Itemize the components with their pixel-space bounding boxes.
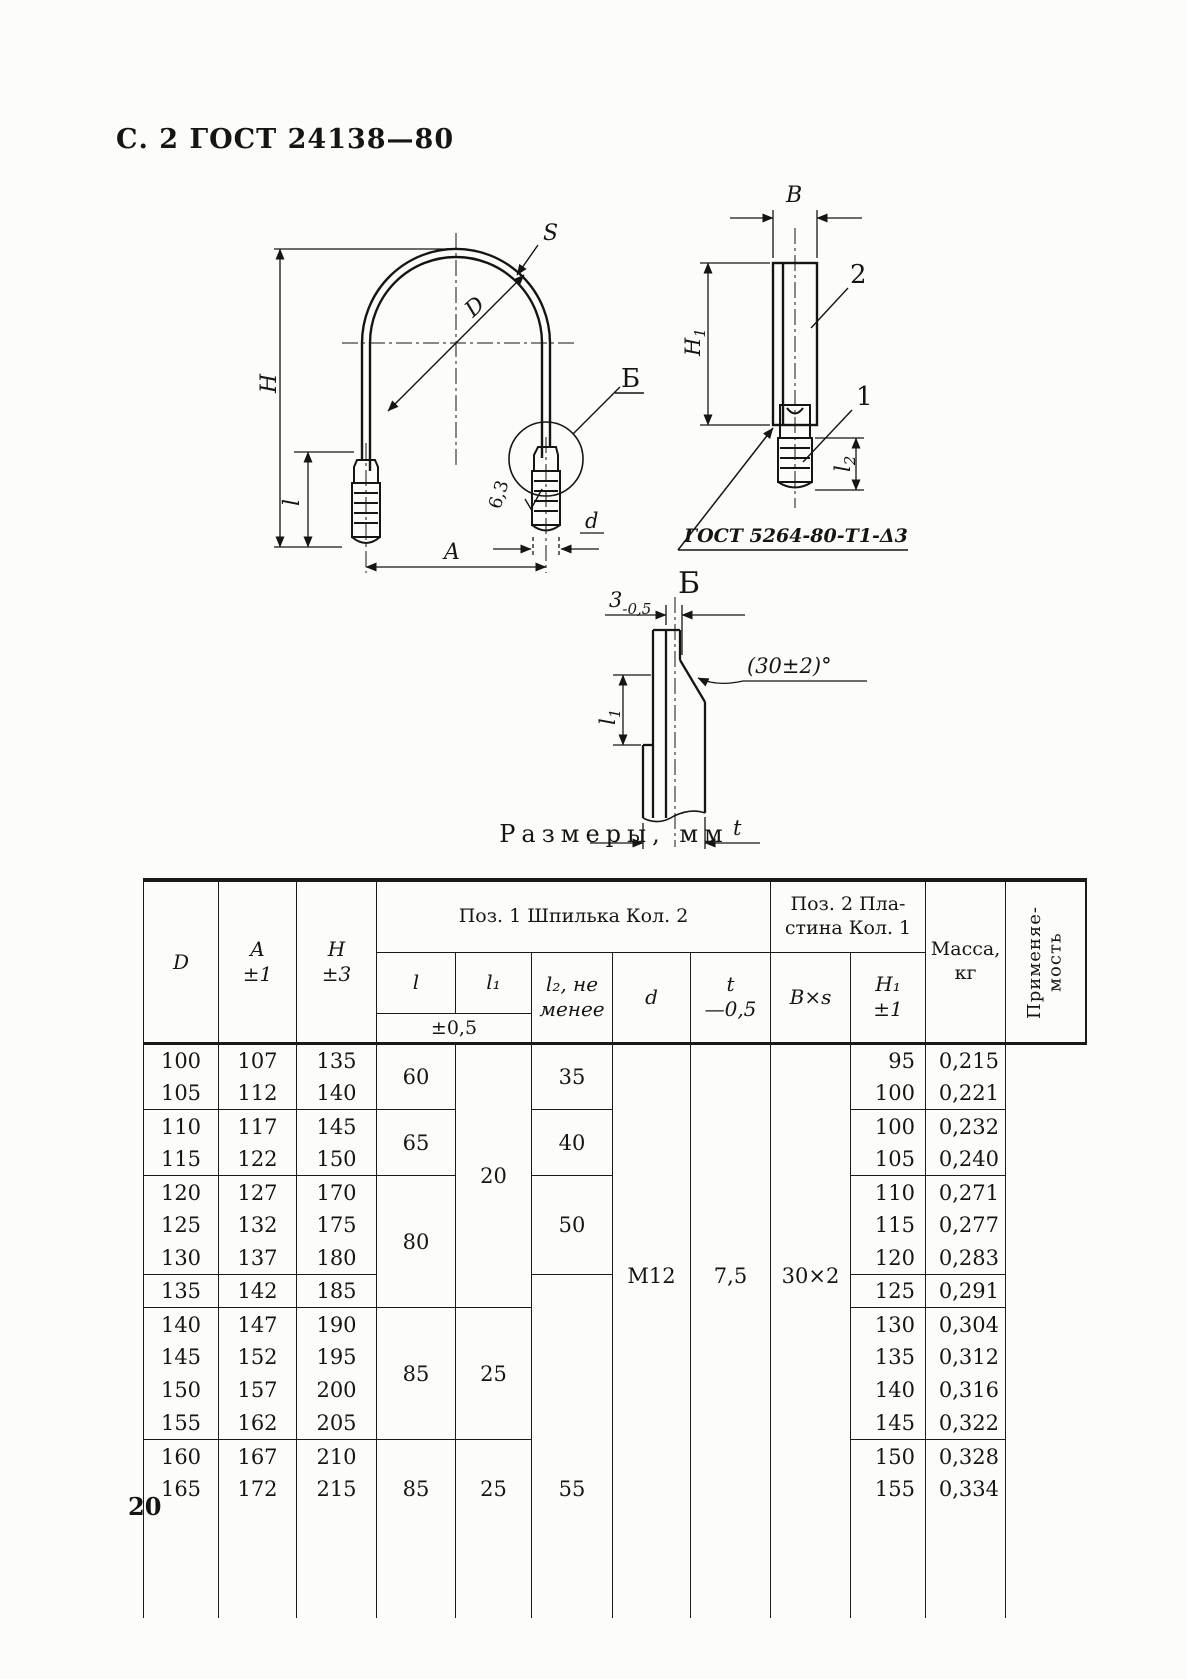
cell-mass: 0,277 bbox=[926, 1209, 1006, 1242]
cell-d: 155 bbox=[144, 1407, 219, 1440]
col-header-A: A ±1 bbox=[219, 880, 297, 1044]
col-header-l: l bbox=[377, 952, 456, 1014]
cell-h: 190 bbox=[297, 1308, 377, 1341]
cell-l1: 25 bbox=[456, 1308, 532, 1440]
col-header-thread: d bbox=[613, 952, 691, 1044]
cell-use bbox=[1006, 1044, 1086, 1506]
group-header-plate: Поз. 2 Пла- стина Кол. 1 bbox=[771, 880, 926, 952]
cell-h1: 95 bbox=[851, 1044, 926, 1077]
tail-d bbox=[144, 1506, 219, 1618]
tail-l1 bbox=[456, 1506, 532, 1618]
col-header-usage: Применяе- мость bbox=[1006, 880, 1086, 1044]
cell-h1: 125 bbox=[851, 1275, 926, 1308]
tail-l2 bbox=[532, 1506, 613, 1618]
cell-a: 162 bbox=[219, 1407, 297, 1440]
cell-h: 195 bbox=[297, 1341, 377, 1374]
col-header-t: t —0,5 bbox=[691, 952, 771, 1044]
cell-d: 140 bbox=[144, 1308, 219, 1341]
col-header-l1: l₁ bbox=[456, 952, 532, 1014]
tail-l bbox=[377, 1506, 456, 1618]
col-header-H: H ±3 bbox=[297, 880, 377, 1044]
cell-thr: М12 bbox=[613, 1044, 691, 1506]
cell-h1: 130 bbox=[851, 1308, 926, 1341]
label-width: A bbox=[442, 540, 460, 565]
cell-h1: 150 bbox=[851, 1440, 926, 1473]
cell-l: 80 bbox=[377, 1176, 456, 1308]
cell-h: 175 bbox=[297, 1209, 377, 1242]
cell-t: 7,5 bbox=[691, 1044, 771, 1506]
cell-h: 135 bbox=[297, 1044, 377, 1077]
cell-mass: 0,328 bbox=[926, 1440, 1006, 1473]
figure-detail: Б 3-0,5 (30±2)° l1 t bbox=[545, 545, 890, 860]
cell-h: 215 bbox=[297, 1473, 377, 1506]
angle-leader bbox=[698, 678, 867, 683]
tail-bxs bbox=[771, 1506, 851, 1618]
cell-a: 107 bbox=[219, 1044, 297, 1077]
label-detail-title: Б bbox=[678, 566, 700, 601]
tail-thr bbox=[613, 1506, 691, 1618]
table-title: Размеры, мм bbox=[143, 820, 1085, 848]
label-plate-width: B bbox=[785, 183, 802, 208]
cell-a: 122 bbox=[219, 1143, 297, 1176]
label-pos-stud: 1 bbox=[856, 382, 873, 412]
label-length: l bbox=[280, 499, 305, 506]
tail-a bbox=[219, 1506, 297, 1618]
cell-mass: 0,215 bbox=[926, 1044, 1006, 1077]
cell-a: 157 bbox=[219, 1374, 297, 1407]
cell-d: 160 bbox=[144, 1440, 219, 1473]
cell-h1: 100 bbox=[851, 1077, 926, 1110]
cell-bxs: 30×2 bbox=[771, 1044, 851, 1506]
figure-plate: B H1 2 1 l2 ГОСТ 5264-80-Т1-Δ3 bbox=[640, 170, 1080, 590]
cell-h: 170 bbox=[297, 1176, 377, 1209]
cell-d: 100 bbox=[144, 1044, 219, 1077]
label-plate-height: H1 bbox=[681, 328, 709, 357]
cell-l2: 55 bbox=[532, 1275, 613, 1506]
document-page: С. 2 ГОСТ 24138—80 bbox=[0, 0, 1187, 1679]
label-angle: (30±2)° bbox=[747, 654, 832, 678]
label-height: H bbox=[257, 373, 282, 394]
cell-l: 60 bbox=[377, 1044, 456, 1110]
table-head: D A ±1 H ±3 Поз. 1 Шпилька Кол. 2 Поз. 2… bbox=[144, 880, 1086, 1044]
tail-t bbox=[691, 1506, 771, 1618]
dim-H1 bbox=[700, 263, 770, 425]
col-header-tolerance: ±0,5 bbox=[377, 1014, 532, 1044]
group-header-stud: Поз. 1 Шпилька Кол. 2 bbox=[377, 880, 771, 952]
cell-h1: 140 bbox=[851, 1374, 926, 1407]
label-gap: 3-0,5 bbox=[609, 588, 651, 618]
cell-h: 200 bbox=[297, 1374, 377, 1407]
cell-d: 145 bbox=[144, 1341, 219, 1374]
cell-mass: 0,283 bbox=[926, 1242, 1006, 1275]
cell-d: 130 bbox=[144, 1242, 219, 1275]
cell-h1: 145 bbox=[851, 1407, 926, 1440]
cell-h1: 135 bbox=[851, 1341, 926, 1374]
cell-mass: 0,322 bbox=[926, 1407, 1006, 1440]
label-pos-plate: 2 bbox=[850, 260, 867, 290]
cell-mass: 0,240 bbox=[926, 1143, 1006, 1176]
label-roughness: 6,3 bbox=[485, 478, 514, 512]
cell-mass: 0,312 bbox=[926, 1341, 1006, 1374]
col-header-D: D bbox=[144, 880, 219, 1044]
cell-a: 137 bbox=[219, 1242, 297, 1275]
cell-h: 205 bbox=[297, 1407, 377, 1440]
cell-d: 120 bbox=[144, 1176, 219, 1209]
cell-a: 152 bbox=[219, 1341, 297, 1374]
cell-a: 147 bbox=[219, 1308, 297, 1341]
cell-l1: 25 bbox=[456, 1440, 532, 1506]
cell-l: 85 bbox=[377, 1308, 456, 1440]
cell-h1: 115 bbox=[851, 1209, 926, 1242]
label-weld: ГОСТ 5264-80-Т1-Δ3 bbox=[683, 525, 908, 547]
cell-h1: 120 bbox=[851, 1242, 926, 1275]
cell-l2: 40 bbox=[532, 1110, 613, 1176]
label-s: S bbox=[543, 221, 558, 246]
page-number: 20 bbox=[128, 1492, 161, 1521]
cell-mass: 0,334 bbox=[926, 1473, 1006, 1506]
col-header-l2: l₂, не менее bbox=[532, 952, 613, 1044]
cell-h1: 110 bbox=[851, 1176, 926, 1209]
cell-d: 110 bbox=[144, 1110, 219, 1143]
figure-clamp: S D H l A d 6,3 Б bbox=[230, 215, 660, 575]
col-header-bxs: B×s bbox=[771, 952, 851, 1044]
cell-a: 117 bbox=[219, 1110, 297, 1143]
usage-vertical-label: Применяе- мость bbox=[1025, 906, 1066, 1019]
cell-a: 127 bbox=[219, 1176, 297, 1209]
cell-h: 185 bbox=[297, 1275, 377, 1308]
label-diameter: D bbox=[460, 292, 491, 323]
cell-a: 172 bbox=[219, 1473, 297, 1506]
cell-h: 145 bbox=[297, 1110, 377, 1143]
cell-d: 115 bbox=[144, 1143, 219, 1176]
page-title: С. 2 ГОСТ 24138—80 bbox=[116, 124, 454, 155]
cell-l: 85 bbox=[377, 1440, 456, 1506]
tail-mass bbox=[926, 1506, 1006, 1618]
cell-h: 150 bbox=[297, 1143, 377, 1176]
table-body: 100107135602035М127,530×2950,21510511214… bbox=[144, 1044, 1086, 1618]
cell-h1: 100 bbox=[851, 1110, 926, 1143]
cell-d: 135 bbox=[144, 1275, 219, 1308]
label-stud-diameter: d bbox=[585, 509, 598, 533]
dimensions-table: D A ±1 H ±3 Поз. 1 Шпилька Кол. 2 Поз. 2… bbox=[143, 878, 1087, 1618]
cell-a: 167 bbox=[219, 1440, 297, 1473]
cell-l2: 50 bbox=[532, 1176, 613, 1275]
cell-h1: 105 bbox=[851, 1143, 926, 1176]
cell-mass: 0,271 bbox=[926, 1176, 1006, 1209]
tail-h bbox=[297, 1506, 377, 1618]
s-leader bbox=[517, 245, 538, 275]
dim-B bbox=[730, 210, 862, 258]
cell-a: 132 bbox=[219, 1209, 297, 1242]
cell-d: 150 bbox=[144, 1374, 219, 1407]
cell-a: 142 bbox=[219, 1275, 297, 1308]
cell-l2: 35 bbox=[532, 1044, 613, 1110]
cell-mass: 0,221 bbox=[926, 1077, 1006, 1110]
cell-d: 105 bbox=[144, 1077, 219, 1110]
cell-h1: 155 bbox=[851, 1473, 926, 1506]
cell-mass: 0,291 bbox=[926, 1275, 1006, 1308]
col-header-h1: H₁ ±1 bbox=[851, 952, 926, 1044]
label-stud-length: l2 bbox=[831, 456, 859, 472]
cell-h: 180 bbox=[297, 1242, 377, 1275]
label-l1: l1 bbox=[596, 709, 624, 725]
cell-a: 112 bbox=[219, 1077, 297, 1110]
cell-h: 140 bbox=[297, 1077, 377, 1110]
cell-l: 65 bbox=[377, 1110, 456, 1176]
cell-d: 125 bbox=[144, 1209, 219, 1242]
cell-h: 210 bbox=[297, 1440, 377, 1473]
tail-h1 bbox=[851, 1506, 926, 1618]
cell-mass: 0,316 bbox=[926, 1374, 1006, 1407]
tail-use bbox=[1006, 1506, 1086, 1618]
cell-l1: 20 bbox=[456, 1044, 532, 1308]
label-detail-mark: Б bbox=[621, 364, 640, 394]
col-header-mass: Масса, кг bbox=[926, 880, 1006, 1044]
detail-outline bbox=[643, 630, 705, 822]
cell-mass: 0,232 bbox=[926, 1110, 1006, 1143]
cell-mass: 0,304 bbox=[926, 1308, 1006, 1341]
